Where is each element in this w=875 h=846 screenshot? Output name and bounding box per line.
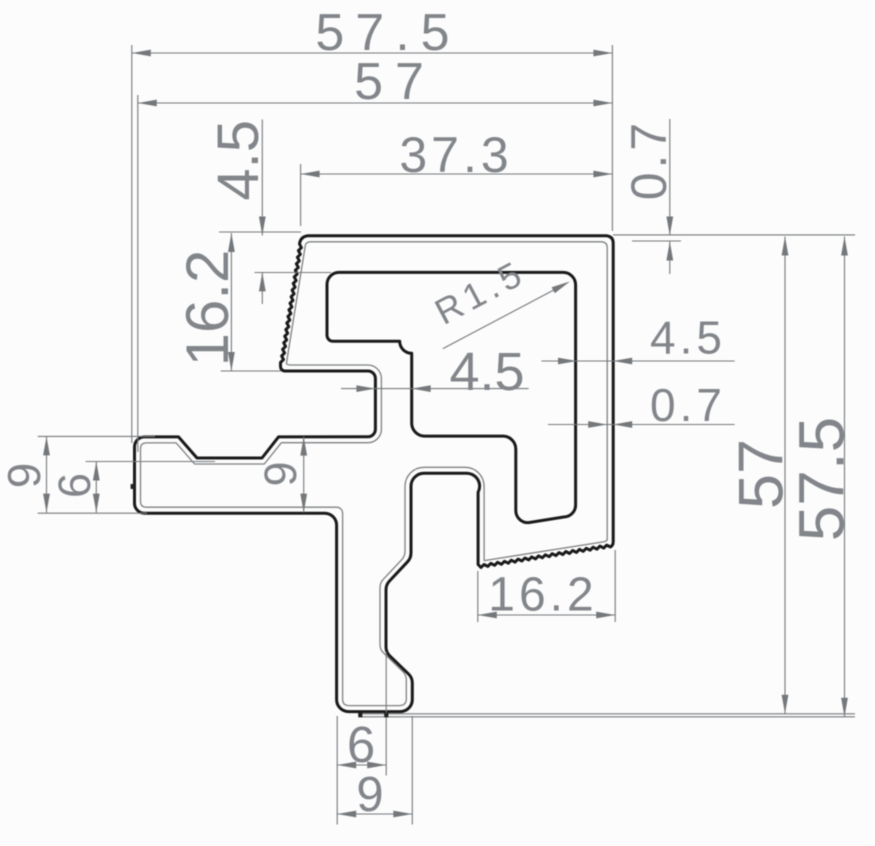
svg-text:0.7: 0.7 (621, 119, 677, 201)
svg-text:4.5: 4.5 (650, 312, 726, 364)
svg-text:16.2: 16.2 (488, 569, 597, 622)
svg-text:37.3: 37.3 (399, 127, 512, 183)
svg-text:4.5: 4.5 (449, 342, 524, 402)
svg-text:0.7: 0.7 (650, 379, 726, 431)
svg-text:57: 57 (354, 53, 436, 111)
svg-text:9: 9 (0, 463, 50, 489)
svg-text:57.5: 57.5 (786, 417, 858, 542)
svg-text:9: 9 (356, 768, 383, 822)
svg-text:16.2: 16.2 (174, 250, 241, 367)
svg-text:6: 6 (347, 716, 375, 773)
svg-text:9: 9 (255, 461, 306, 486)
svg-text:4.5: 4.5 (206, 120, 271, 201)
svg-text:6: 6 (49, 473, 100, 498)
